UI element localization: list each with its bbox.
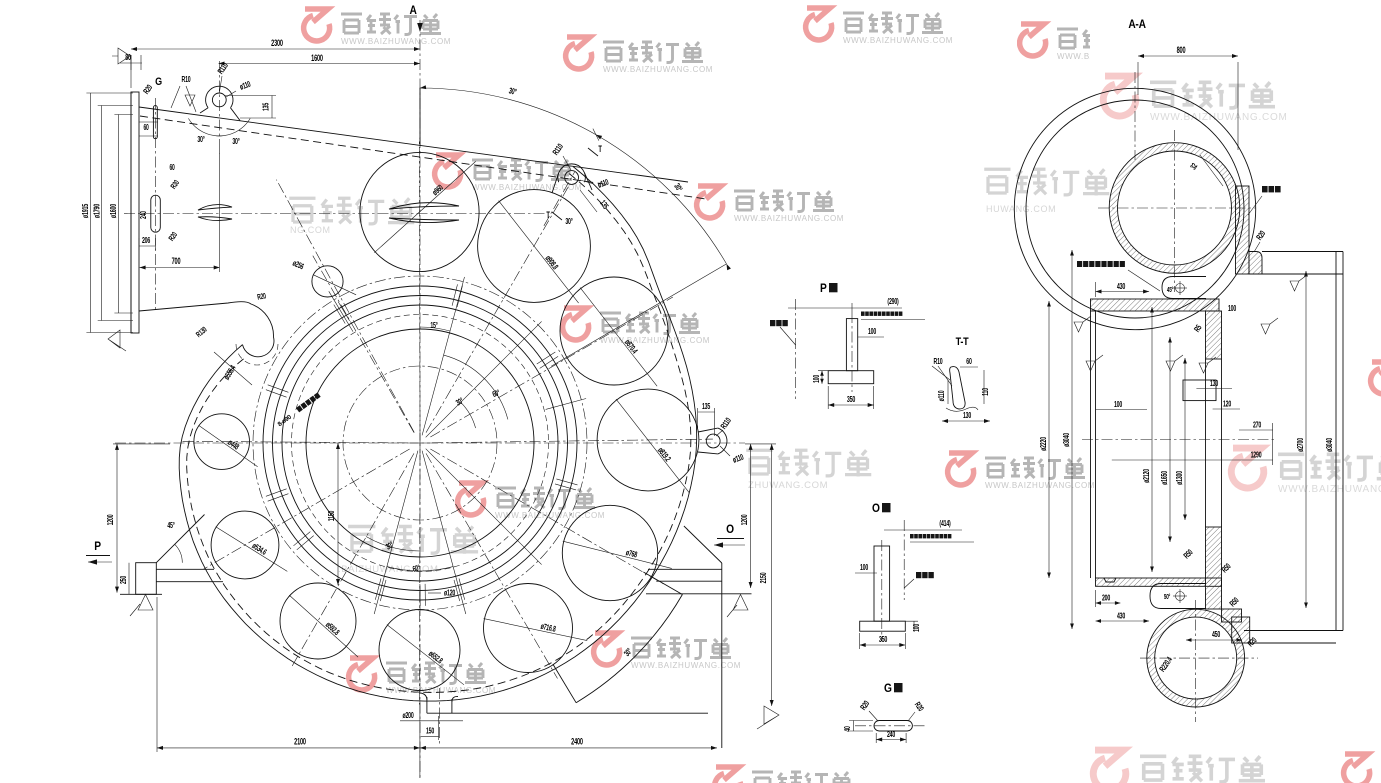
svg-text:2150: 2150: [760, 572, 768, 583]
svg-text:HUWANG.COM: HUWANG.COM: [986, 204, 1056, 214]
svg-text:700: 700: [172, 256, 181, 267]
svg-text:30°: 30°: [232, 137, 240, 147]
svg-text:100: 100: [860, 564, 868, 572]
svg-text:130: 130: [1210, 380, 1218, 388]
svg-text:ø1600: ø1600: [109, 204, 119, 218]
svg-text:ø120: ø120: [444, 589, 455, 597]
svg-text:430: 430: [1117, 612, 1125, 620]
svg-text:150: 150: [426, 727, 434, 735]
svg-text:ø3040: ø3040: [1063, 433, 1071, 447]
svg-text:350: 350: [847, 395, 856, 405]
svg-text:P: P: [94, 540, 101, 553]
svg-text:135: 135: [702, 403, 710, 411]
svg-text:ø2120: ø2120: [1143, 469, 1151, 483]
svg-text:ø200: ø200: [402, 712, 413, 720]
svg-text:100: 100: [813, 375, 821, 383]
svg-text:100: 100: [1114, 401, 1122, 409]
svg-text:240: 240: [140, 211, 148, 219]
svg-text:450: 450: [1212, 631, 1220, 639]
svg-text:2400: 2400: [571, 736, 583, 747]
svg-text:G: G: [884, 682, 892, 695]
svg-text:O: O: [726, 523, 734, 536]
svg-text:800: 800: [1177, 45, 1186, 56]
svg-text:270: 270: [1253, 421, 1261, 429]
svg-text:G: G: [155, 76, 162, 88]
svg-text:45°: 45°: [1167, 287, 1174, 294]
svg-text:430: 430: [1117, 282, 1126, 292]
svg-text:ø1790: ø1790: [92, 204, 102, 218]
svg-text:50°: 50°: [1164, 594, 1171, 601]
svg-text:R10: R10: [182, 76, 191, 84]
svg-text:ø2700: ø2700: [1297, 438, 1305, 452]
svg-text:130: 130: [963, 412, 971, 420]
svg-text:1200: 1200: [741, 514, 749, 525]
svg-text:ø1650: ø1650: [1161, 471, 1169, 485]
svg-text:30°: 30°: [197, 135, 205, 145]
svg-text:1600: 1600: [311, 53, 323, 64]
svg-text:1150: 1150: [328, 510, 336, 521]
svg-text:100: 100: [868, 328, 876, 336]
svg-text:T-T: T-T: [956, 336, 970, 348]
svg-text:100: 100: [1228, 305, 1236, 313]
svg-text:60: 60: [966, 358, 972, 366]
svg-text:2100: 2100: [294, 736, 306, 747]
svg-text:ø1300: ø1300: [1176, 471, 1184, 485]
svg-text:.BAIZHUWANG.COM: .BAIZHUWANG.COM: [338, 564, 438, 575]
svg-text:R10: R10: [934, 358, 943, 366]
svg-text:NG.COM: NG.COM: [290, 225, 331, 235]
svg-text:30°: 30°: [565, 217, 573, 227]
svg-text:ø3040: ø3040: [1326, 438, 1334, 452]
svg-text:T: T: [546, 210, 550, 221]
svg-text:2300: 2300: [271, 38, 283, 49]
svg-text:200: 200: [1102, 594, 1110, 602]
svg-text:60: 60: [143, 124, 149, 132]
svg-text:135: 135: [262, 103, 270, 111]
svg-text:240: 240: [887, 731, 895, 739]
svg-text:1200: 1200: [107, 514, 115, 525]
svg-text:60: 60: [169, 164, 175, 172]
svg-text:350: 350: [879, 635, 888, 645]
svg-text:P: P: [820, 282, 827, 295]
svg-text:120: 120: [1223, 400, 1231, 408]
svg-text:T: T: [598, 144, 602, 155]
svg-text:15°: 15°: [430, 321, 438, 331]
svg-text:1290: 1290: [1251, 451, 1262, 459]
svg-text:ø2220: ø2220: [1040, 437, 1048, 451]
svg-text:(414): (414): [939, 520, 950, 528]
svg-text:110: 110: [982, 388, 990, 396]
svg-text:45°: 45°: [167, 521, 175, 531]
svg-text:A: A: [409, 4, 416, 17]
svg-text:ZHUWANG.COM: ZHUWANG.COM: [748, 480, 828, 491]
svg-text:A-A: A-A: [1128, 18, 1146, 31]
svg-text:O: O: [872, 502, 880, 515]
svg-text:250: 250: [120, 576, 128, 584]
svg-text:(290): (290): [887, 298, 898, 306]
svg-text:206: 206: [142, 237, 150, 245]
svg-text:ø1915: ø1915: [81, 204, 91, 218]
svg-text:ø110: ø110: [938, 390, 946, 401]
svg-text:100: 100: [913, 624, 921, 632]
